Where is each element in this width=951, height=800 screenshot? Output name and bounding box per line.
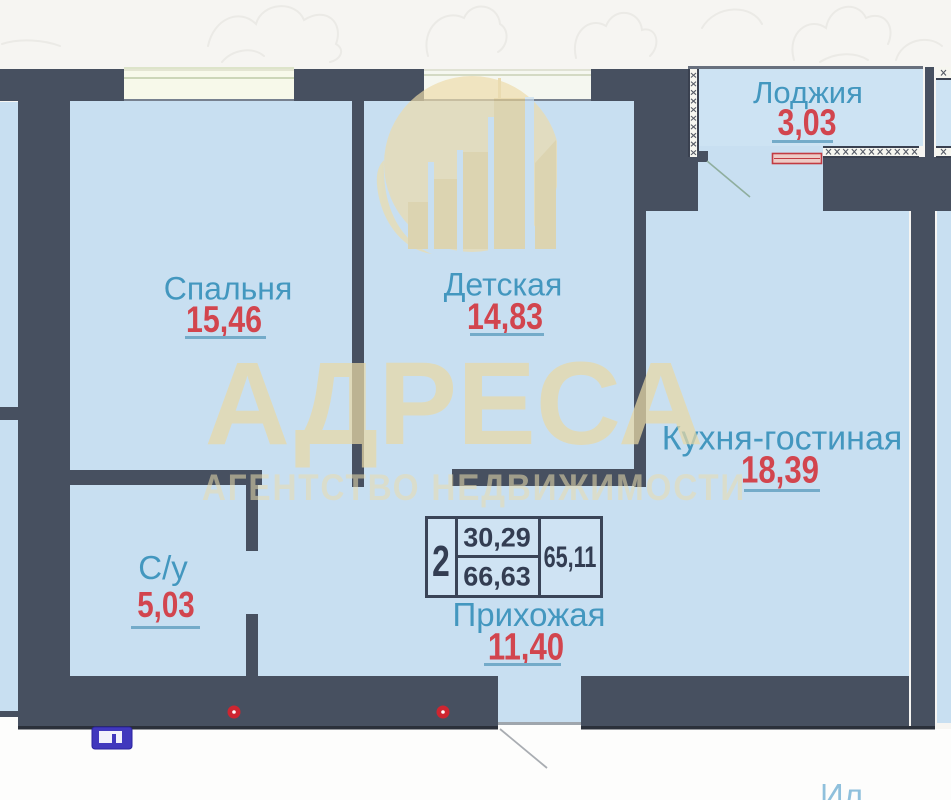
svg-text:Ил: Ил xyxy=(820,777,863,800)
